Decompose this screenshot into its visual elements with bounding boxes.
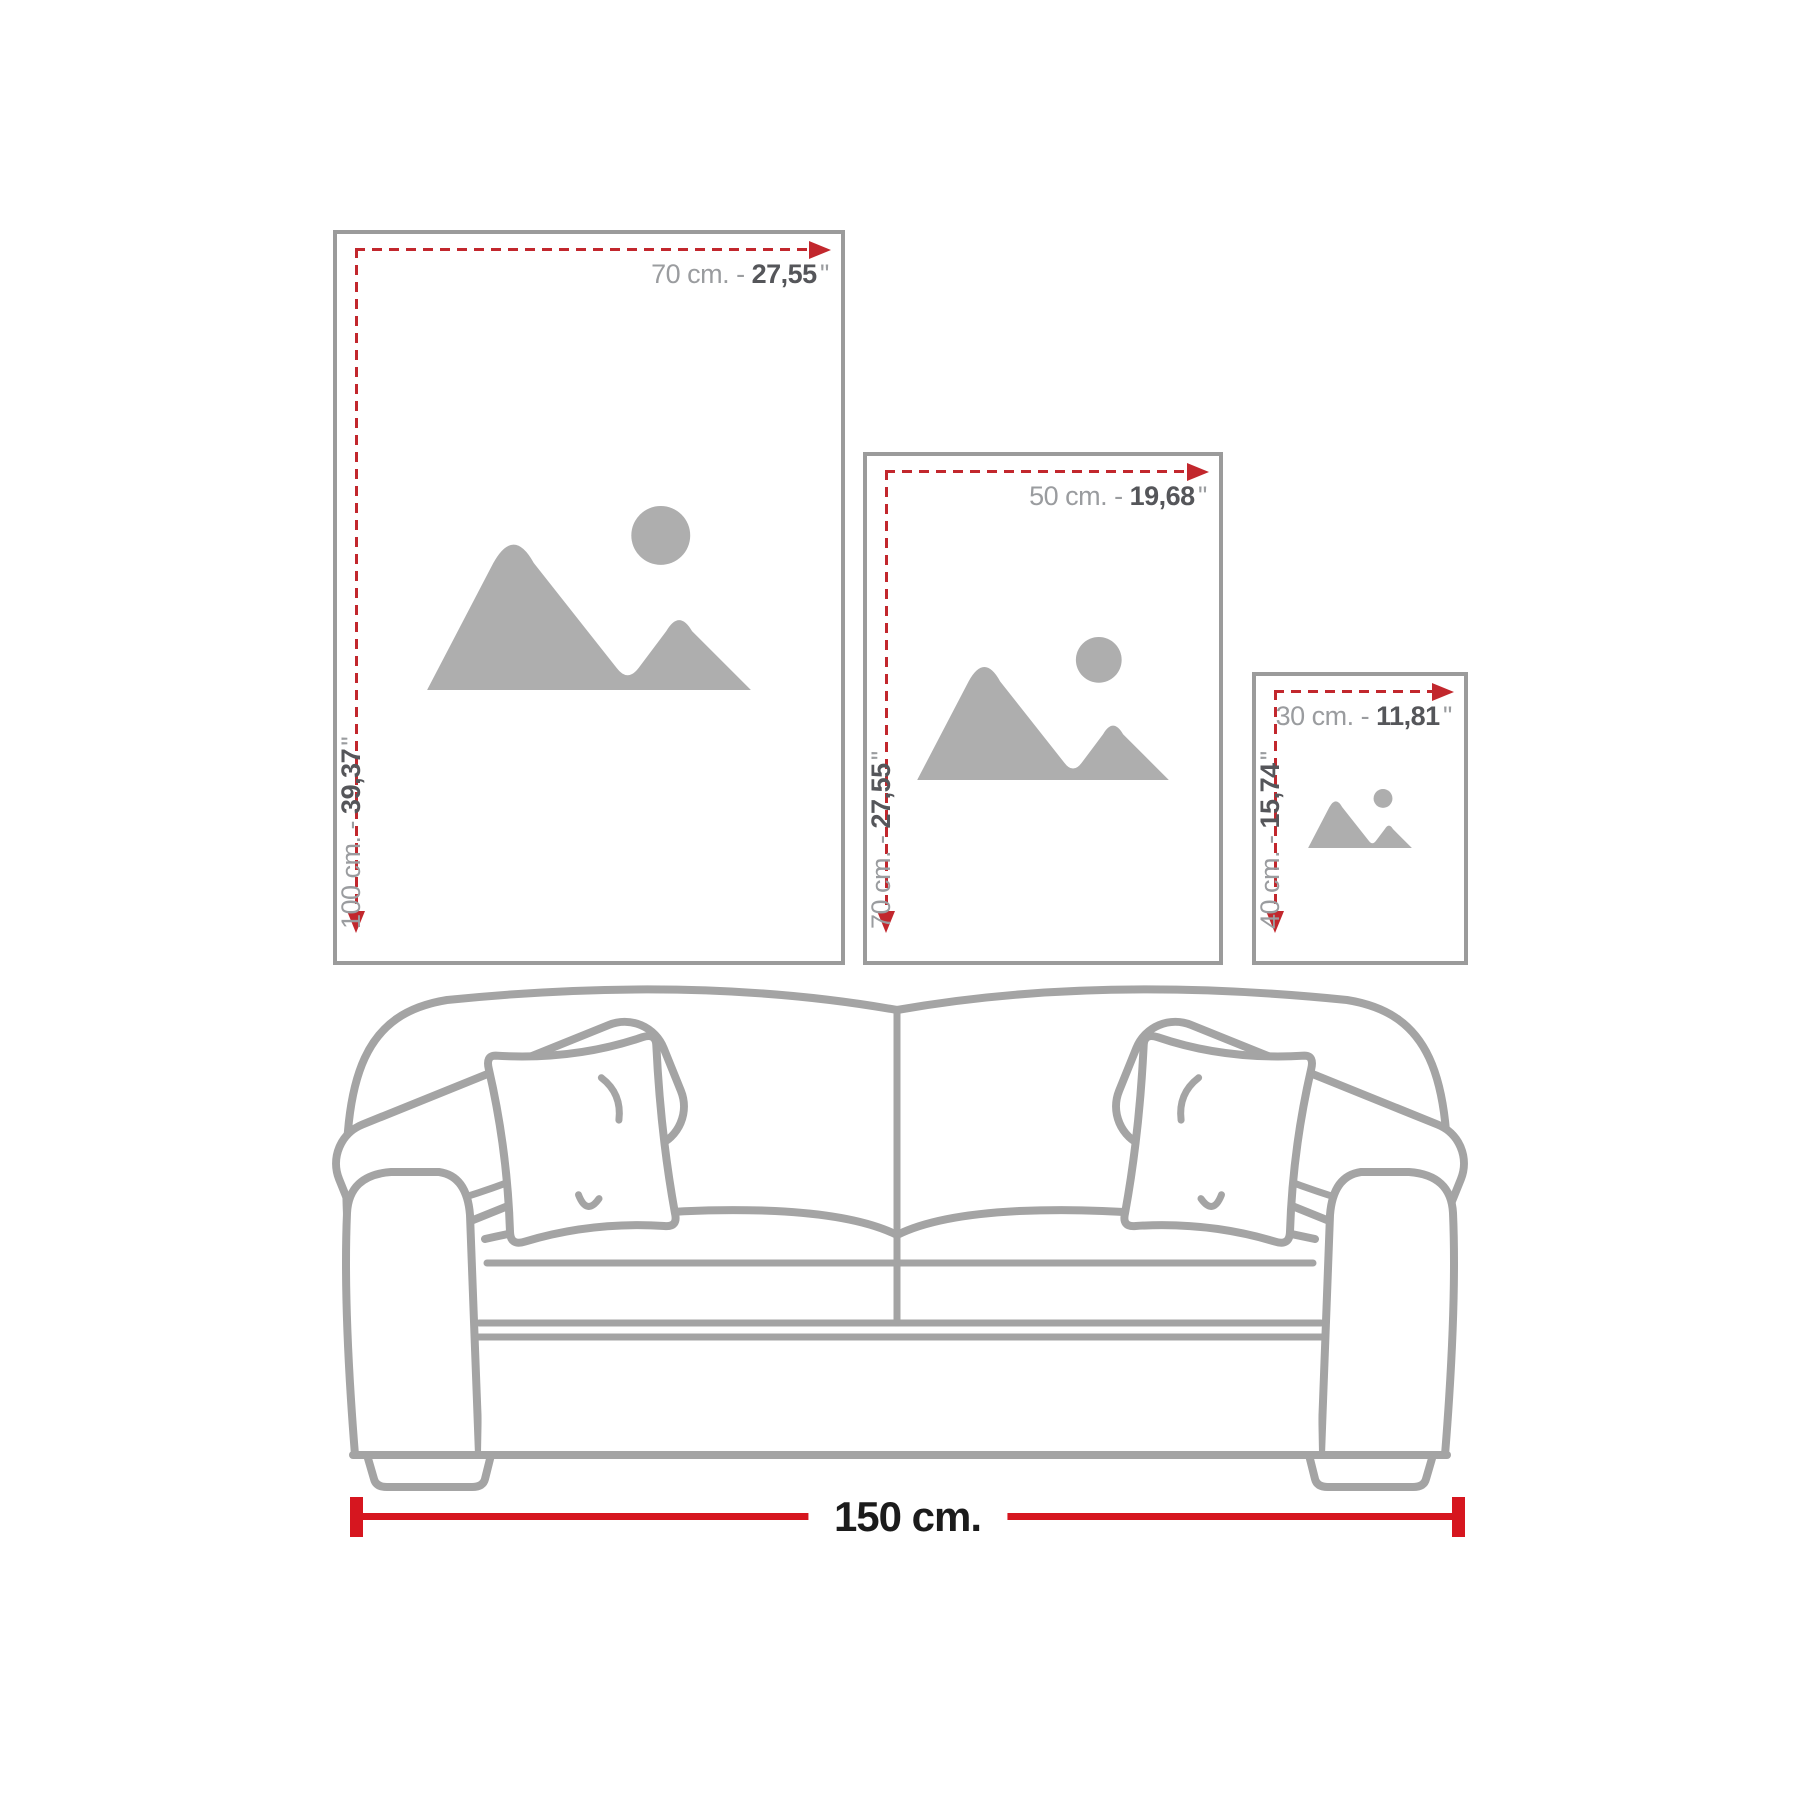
poster-frame-medium: 50 cm. - 19,68'' 70 cm. - 27,55'' <box>863 452 1223 965</box>
width-dimension-line <box>1274 690 1432 693</box>
height-label: 40 cm. - 15,74'' <box>1257 751 1284 929</box>
width-dimension-line <box>355 248 809 251</box>
poster-frame-small: 30 cm. - 11,81'' 40 cm. - 15,74'' <box>1252 672 1468 965</box>
arrow-right-icon <box>809 241 831 259</box>
ruler-endcap-left <box>350 1497 363 1537</box>
width-label: 70 cm. - 27,55'' <box>651 261 829 288</box>
width-label: 50 cm. - 19,68'' <box>1029 483 1207 510</box>
sofa-seat <box>353 1210 1447 1455</box>
image-placeholder-icon <box>427 506 751 690</box>
sofa-armrest-right <box>1321 1172 1454 1455</box>
image-placeholder-icon <box>1308 789 1412 848</box>
sofa-pillow-right <box>1123 1035 1313 1244</box>
ruler-endcap-right <box>1452 1497 1465 1537</box>
image-placeholder-icon <box>917 637 1169 780</box>
width-dimension-line <box>885 470 1187 473</box>
poster-frame-large: 70 cm. - 27,55'' 100 cm. - 39,37'' <box>333 230 845 965</box>
sofa-illustration <box>295 985 1505 1500</box>
sofa-width-ruler: 150 cm. <box>350 1497 1465 1537</box>
arrow-right-icon <box>1432 683 1454 701</box>
sofa-width-value: 150 cm. <box>808 1496 1007 1538</box>
arrow-right-icon <box>1187 463 1209 481</box>
height-label: 100 cm. - 39,37'' <box>338 737 365 929</box>
sofa-armrest-left <box>346 1172 479 1455</box>
width-label: 30 cm. - 11,81'' <box>1276 703 1452 730</box>
sofa-pillow-left <box>487 1035 677 1244</box>
height-label: 70 cm. - 27,55'' <box>868 751 895 929</box>
sofa-foot-left <box>367 1455 491 1487</box>
sofa-foot-right <box>1309 1455 1433 1487</box>
size-guide-diagram: 70 cm. - 27,55'' 100 cm. - 39,37'' 50 cm… <box>0 0 1800 1800</box>
